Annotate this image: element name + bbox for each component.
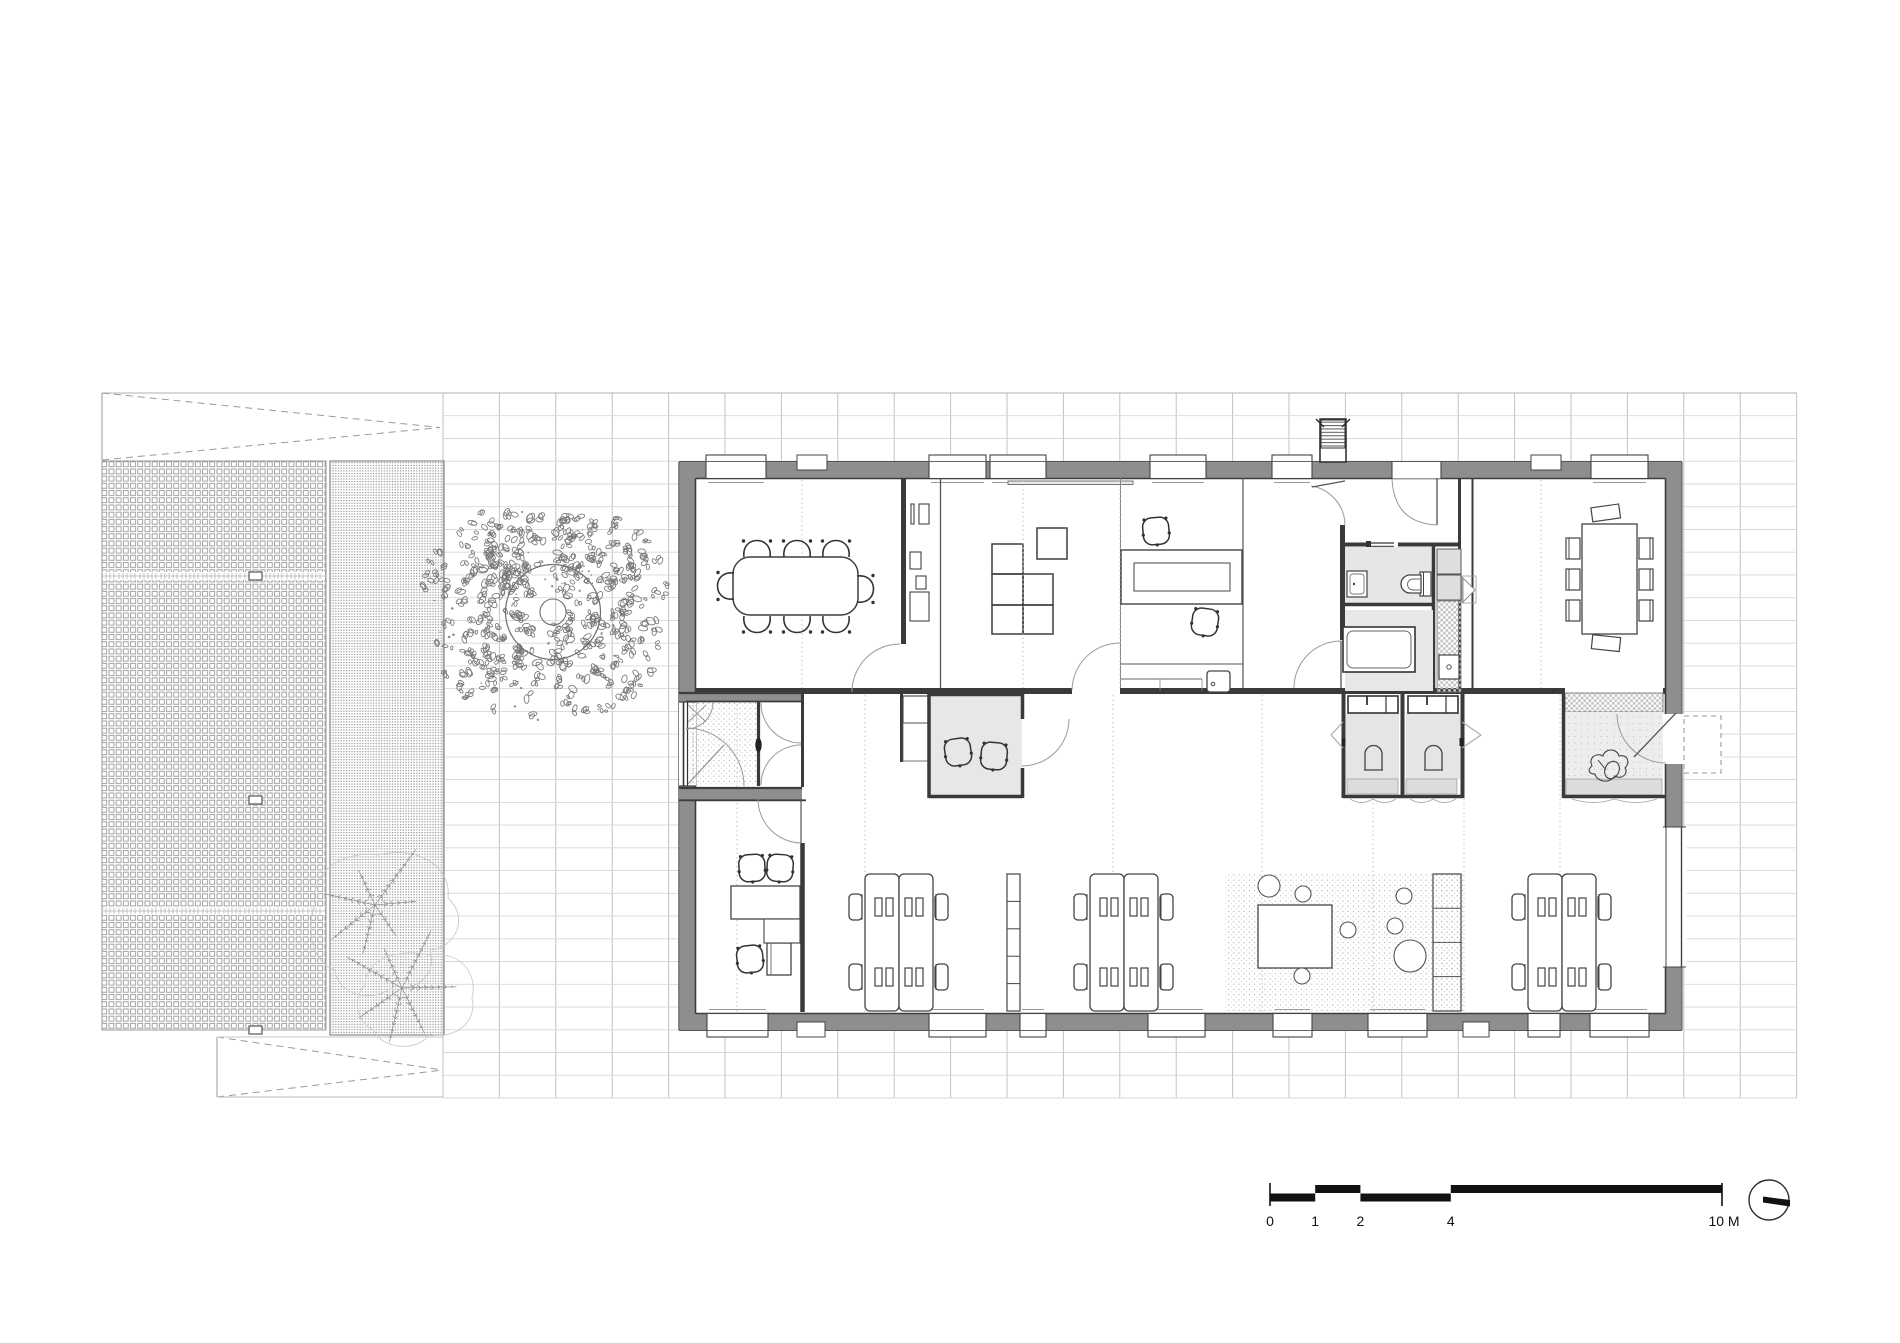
svg-text:2: 2 — [1357, 1213, 1365, 1229]
svg-text:0: 0 — [1266, 1213, 1274, 1229]
svg-text:10 M: 10 M — [1708, 1213, 1739, 1229]
svg-text:4: 4 — [1447, 1213, 1455, 1229]
svg-text:1: 1 — [1311, 1213, 1319, 1229]
